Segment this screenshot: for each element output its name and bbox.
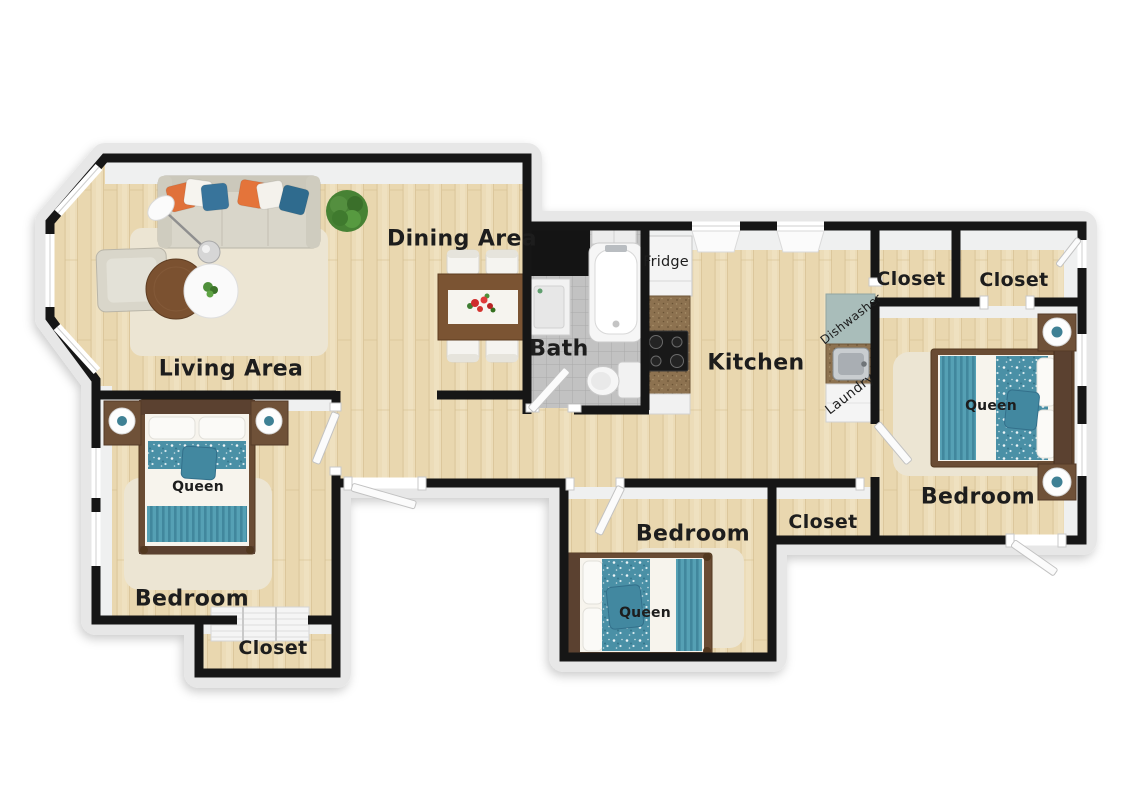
label-bed-middle-size: Queen [619,605,671,621]
sofa [158,176,320,248]
potted-plant [326,190,368,232]
label-closet-top-left: Closet [876,268,945,290]
label-living-area: Living Area [159,357,304,382]
dining-chair [447,250,479,276]
label-bed-left-size: Queen [172,479,224,495]
bathtub [589,243,643,342]
label-fridge: Fridge [643,254,689,270]
dining-chair [486,250,518,276]
label-closet-bottom-left: Closet [238,637,307,659]
side-table [184,264,238,318]
label-bedroom-right: Bedroom [921,485,1035,510]
floor-plan: Living Area Dining Area Bath Kitchen Fri… [0,0,1140,793]
label-closet-top-right: Closet [979,269,1048,291]
floorplan-svg [0,0,1140,793]
bed-left [139,400,255,554]
nightstand [251,401,288,445]
table-runner [448,290,518,324]
label-bedroom-middle: Bedroom [636,522,750,547]
nightstand [1038,464,1076,500]
label-bed-right-size: Queen [965,398,1017,414]
window-sill [692,231,740,252]
label-bedroom-left: Bedroom [135,587,249,612]
nightstand [104,401,141,445]
bed-middle [564,553,712,655]
nightstand [1038,314,1076,351]
label-bath: Bath [529,337,588,362]
kitchen-cabinet-end [643,394,690,414]
label-closet-middle: Closet [788,511,857,533]
label-kitchen: Kitchen [707,351,804,376]
bath-sink [528,279,570,335]
window-sill [777,231,824,252]
cooktop [645,331,688,371]
label-dining-area: Dining Area [387,227,537,252]
